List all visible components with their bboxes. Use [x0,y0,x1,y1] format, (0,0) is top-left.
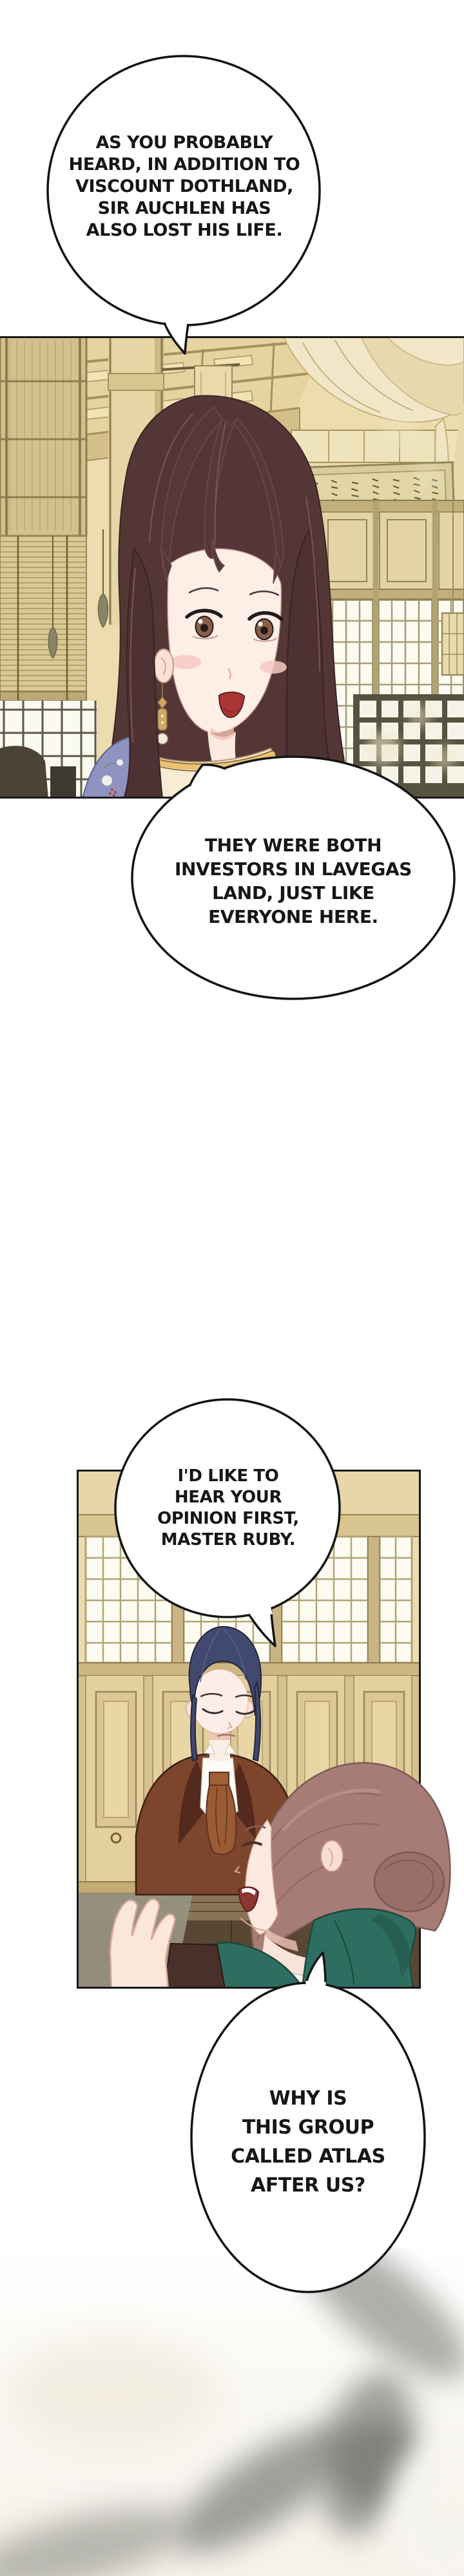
bubble-line: AS YOU PROBABLY [43,132,326,154]
transition-haze [0,2248,464,2576]
bubble-line: OPINION FIRST, [111,1508,345,1529]
bubble-1-text: AS YOU PROBABLY HEARD, IN ADDITION TO VI… [43,132,326,241]
bubble-line: HEARD, IN ADDITION TO [43,154,326,176]
haze-swirl [0,2491,198,2576]
bubble-line: THEY WERE BOTH [128,833,459,857]
webtoon-page: AS YOU PROBABLY HEARD, IN ADDITION TO VI… [0,0,464,2576]
bubble-line: I'D LIKE TO [111,1466,345,1487]
bubble-2-text: THEY WERE BOTH INVESTORS IN LAVEGAS LAND… [128,833,459,929]
bubble-line: ALSO LOST HIS LIFE. [43,220,326,241]
bubble-3-text: I'D LIKE TO HEAR YOUR OPINION FIRST, MAS… [111,1466,345,1551]
bamboo-blind [0,536,86,701]
blush-right [260,661,287,674]
left-cabinet [0,336,86,536]
bubble-line: LAND, JUST LIKE [128,881,459,905]
bubble-line: MASTER RUBY. [111,1529,345,1551]
speech-bubble-2: THEY WERE BOTH INVESTORS IN LAVEGAS LAND… [128,752,459,1003]
bubble-line: AFTER US? [187,2171,429,2200]
bubble-line: INVESTORS IN LAVEGAS [128,857,459,881]
blush-left [170,655,201,669]
bubble-line: VISCOUNT DOTHLAND, [43,176,326,198]
lattice-screen-bottom-left [0,701,97,799]
ear [321,1841,343,1871]
haze-beige [6,2338,219,2447]
ear [154,649,173,683]
bubble-line: SIR AUCHLEN HAS [43,198,326,220]
bubble-line: EVERYONE HERE. [128,905,459,929]
speech-bubble-1: AS YOU PROBABLY HEARD, IN ADDITION TO VI… [43,50,326,361]
speech-bubble-4: WHY IS THIS GROUP CALLED ATLAS AFTER US? [187,1949,429,2297]
speech-bubble-3: I'D LIKE TO HEAR YOUR OPINION FIRST, MAS… [111,1395,345,1655]
bubble-line: THIS GROUP [187,2113,429,2142]
bubble-line: WHY IS [187,2084,429,2113]
panel-1-scene [0,336,464,799]
panel-1-illustration [0,336,464,799]
bubble-line: HEAR YOUR [111,1487,345,1508]
bubble-4-text: WHY IS THIS GROUP CALLED ATLAS AFTER US? [187,2084,429,2200]
bubble-line: CALLED ATLAS [187,2142,429,2171]
